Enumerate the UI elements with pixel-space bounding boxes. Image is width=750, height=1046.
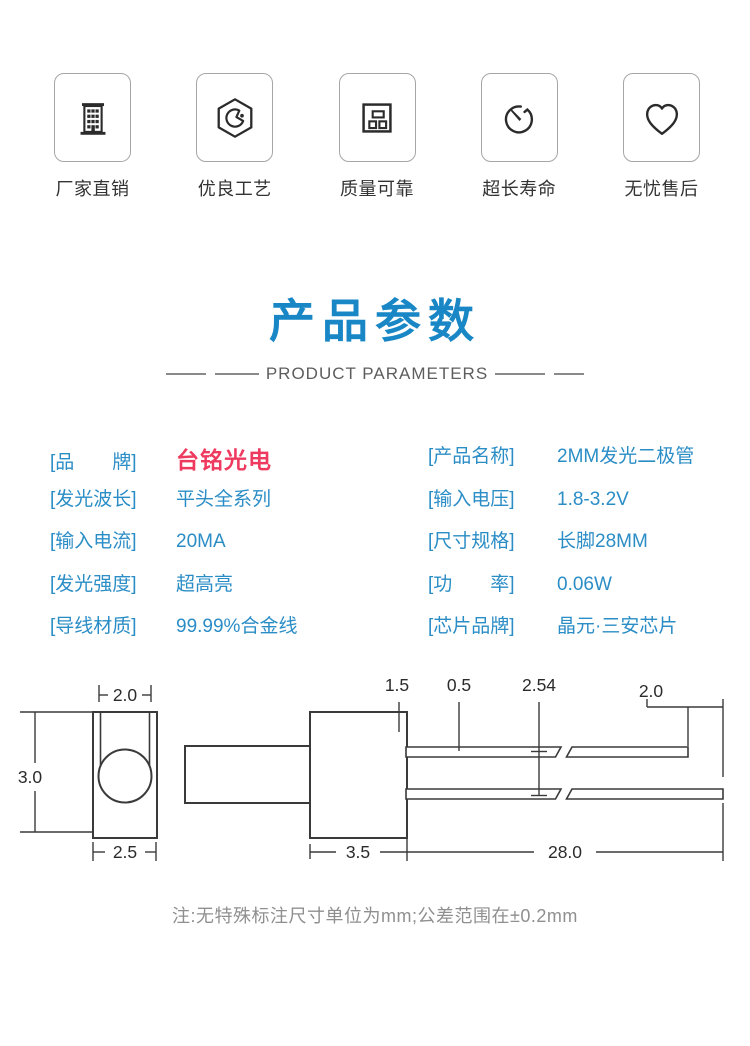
feature-box: [481, 73, 558, 162]
tolerance-note: 注:无特殊标注尺寸单位为mm;公差范围在±0.2mm: [0, 902, 750, 928]
dim-lead-standoff: 1.5: [385, 675, 409, 695]
param-label: [发光波长]: [50, 484, 176, 511]
param-row: [功 率] 0.06W: [428, 569, 694, 595]
building-icon: [70, 95, 116, 141]
page-title: 产品参数: [0, 294, 750, 348]
param-value: 平头全系列: [176, 484, 271, 511]
feature-label: 质量可靠: [340, 175, 414, 201]
feature-label: 优良工艺: [198, 175, 272, 201]
param-label: [芯片品牌]: [428, 611, 557, 638]
param-row: [发光波长] 平头全系列: [50, 484, 390, 510]
param-value: 晶元·三安芯片: [557, 611, 677, 638]
dim-front-height: 3.0: [18, 767, 43, 787]
param-row: [输入电流] 20MA: [50, 526, 390, 552]
param-value-brand: 台铭光电: [176, 441, 272, 475]
components-icon: [354, 95, 400, 141]
heart-icon: [639, 95, 685, 141]
param-value: 超高亮: [176, 569, 233, 596]
feature-fine-craft: 优良工艺: [196, 73, 273, 201]
feature-factory-direct: 厂家直销: [54, 73, 131, 201]
parameter-column-left: [品 牌] 台铭光电 [发光波长] 平头全系列 [输入电流] 20MA [发光强…: [50, 441, 390, 654]
param-row: [发光强度] 超高亮: [50, 569, 390, 595]
dimension-drawing: 2.0 2.5 3.0 1.5 0.5 2.54 2.0 3.5 28.0: [0, 659, 750, 909]
param-value: 99.99%合金线: [176, 611, 297, 638]
subtitle-line: [215, 373, 259, 375]
feature-label: 超长寿命: [482, 175, 556, 201]
dim-body-length: 3.5: [346, 842, 370, 862]
subtitle-line: [495, 373, 545, 375]
badge-icon: [212, 95, 258, 141]
param-row: [品 牌] 台铭光电: [50, 441, 390, 467]
feature-box: [339, 73, 416, 162]
feature-row: 厂家直销 优良工艺: [0, 73, 750, 201]
feature-box: [54, 73, 131, 162]
dim-front-width: 2.5: [113, 842, 137, 862]
dim-lead-tip-diff: 2.0: [639, 681, 664, 701]
param-label: [尺寸规格]: [428, 526, 557, 553]
param-row: [导线材质] 99.99%合金线: [50, 611, 390, 637]
feature-box: [623, 73, 700, 162]
product-parameters-page: 厂家直销 优良工艺: [0, 73, 750, 1046]
subtitle-line: [554, 373, 584, 375]
parameter-list: [品 牌] 台铭光电 [发光波长] 平头全系列 [输入电流] 20MA [发光强…: [0, 441, 750, 654]
section-subtitle: PRODUCT PARAMETERS: [266, 364, 488, 384]
feature-label: 厂家直销: [56, 175, 130, 201]
param-value: 长脚28MM: [557, 526, 648, 553]
dim-lead-length: 28.0: [548, 842, 582, 862]
param-value: 20MA: [176, 531, 226, 553]
param-row: [产品名称] 2MM发光二极管: [428, 441, 694, 467]
param-value: 1.8-3.2V: [557, 489, 629, 511]
param-label: [输入电压]: [428, 484, 557, 511]
parameter-column-right: [产品名称] 2MM发光二极管 [输入电压] 1.8-3.2V [尺寸规格] 长…: [428, 441, 694, 654]
param-label: [产品名称]: [428, 441, 557, 468]
param-row: [输入电压] 1.8-3.2V: [428, 484, 694, 510]
section-subtitle-row: PRODUCT PARAMETERS: [0, 364, 750, 384]
timer-icon: [496, 95, 542, 141]
section-head: 产品参数 PRODUCT PARAMETERS: [0, 294, 750, 384]
feature-reliable-quality: 质量可靠: [339, 73, 416, 201]
param-label: [输入电流]: [50, 526, 176, 553]
param-row: [芯片品牌] 晶元·三安芯片: [428, 611, 694, 637]
led-dimension-diagram: 2.0 2.5 3.0 1.5 0.5 2.54 2.0 3.5 28.0: [0, 659, 750, 909]
feature-label: 无忧售后: [625, 175, 699, 201]
param-label: [品 牌]: [50, 447, 176, 474]
param-label: [功 率]: [428, 569, 557, 596]
param-label: [导线材质]: [50, 611, 176, 638]
param-value: 2MM发光二极管: [557, 441, 694, 468]
feature-after-sales: 无忧售后: [623, 73, 700, 201]
subtitle-line: [166, 373, 206, 375]
feature-box: [196, 73, 273, 162]
param-row: [尺寸规格] 长脚28MM: [428, 526, 694, 552]
dim-lead-pitch: 2.54: [522, 675, 556, 695]
param-value: 0.06W: [557, 574, 612, 596]
param-label: [发光强度]: [50, 569, 176, 596]
dim-lead-thickness: 0.5: [447, 675, 471, 695]
feature-long-life: 超长寿命: [481, 73, 558, 201]
dim-front-lens-width: 2.0: [113, 685, 138, 705]
